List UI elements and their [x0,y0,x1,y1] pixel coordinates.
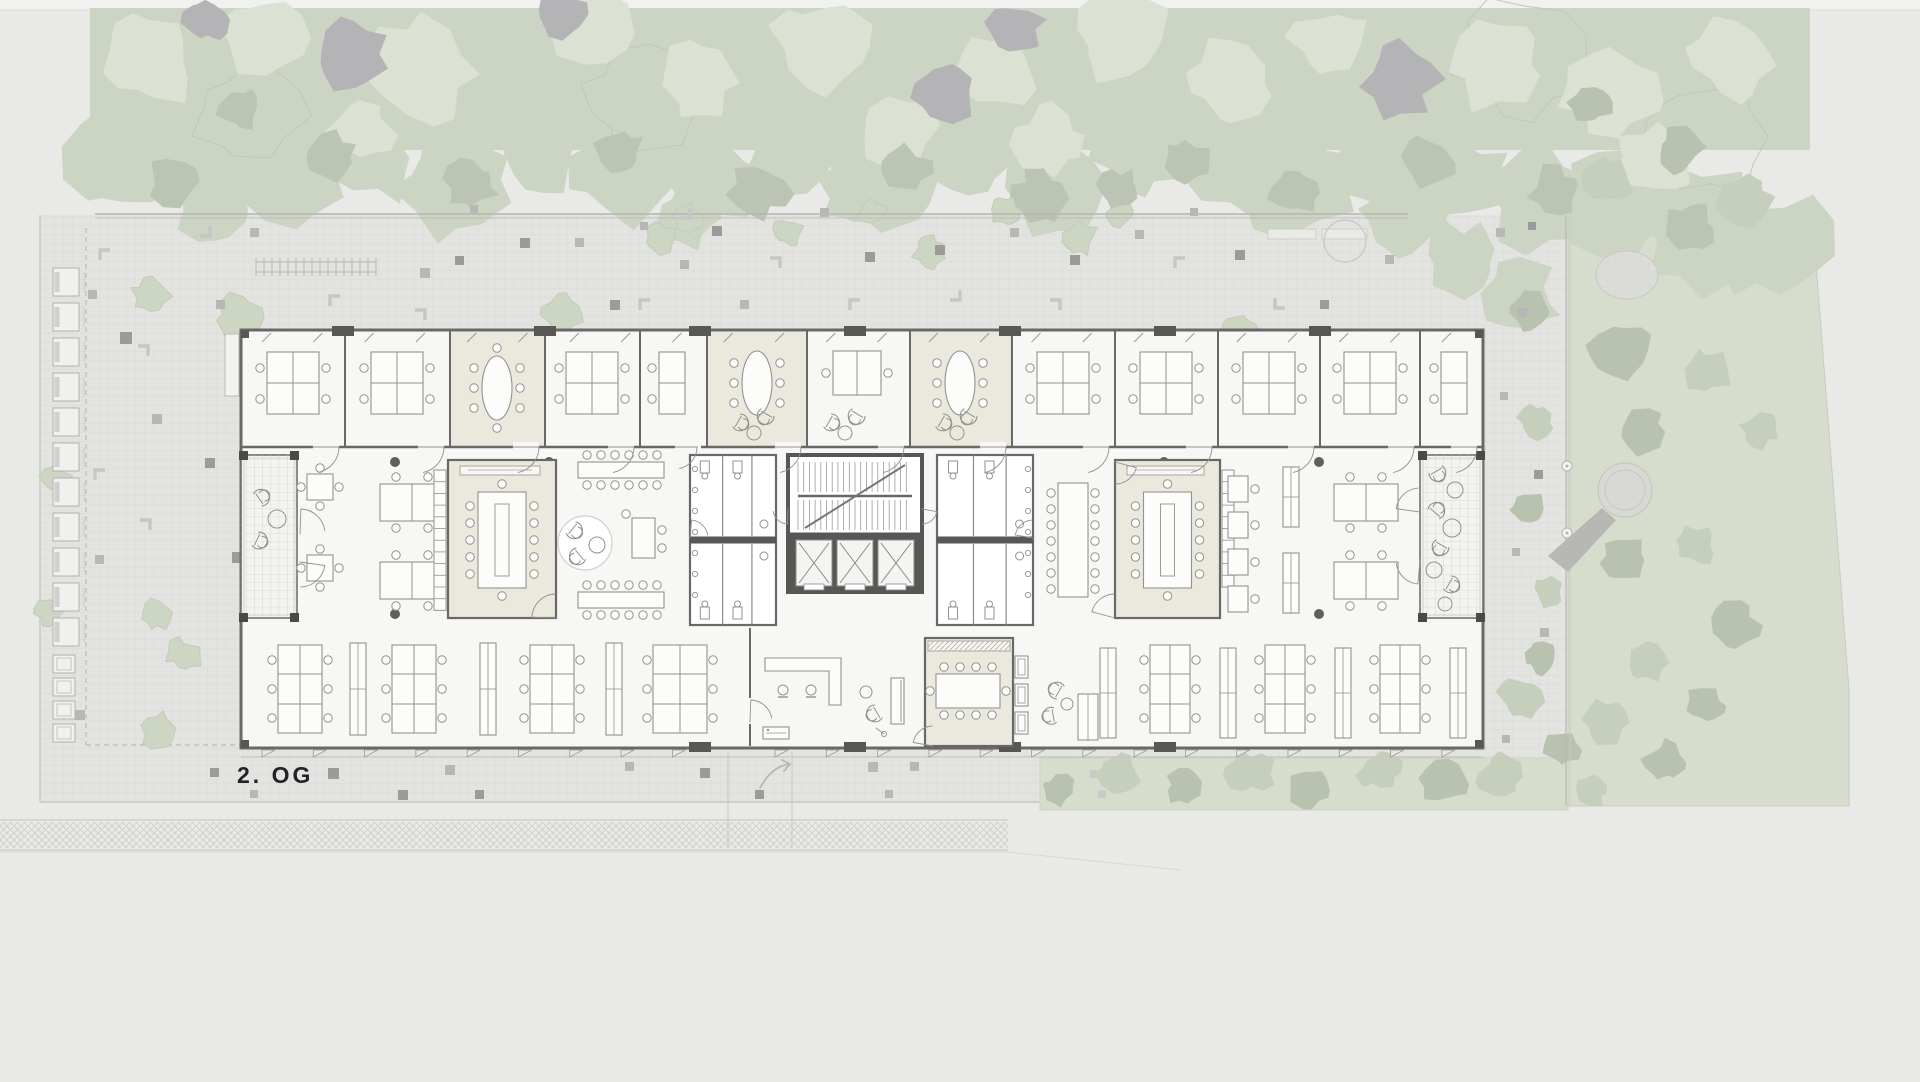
stair-elevator-core [788,455,922,592]
floor-label: 2. OG [237,762,313,789]
building [239,326,1485,757]
site-plan-svg [0,0,1920,1082]
floorplan-sheet: 2. OG [0,0,1920,1082]
wc-block [937,455,1033,625]
wc-block [690,455,776,625]
